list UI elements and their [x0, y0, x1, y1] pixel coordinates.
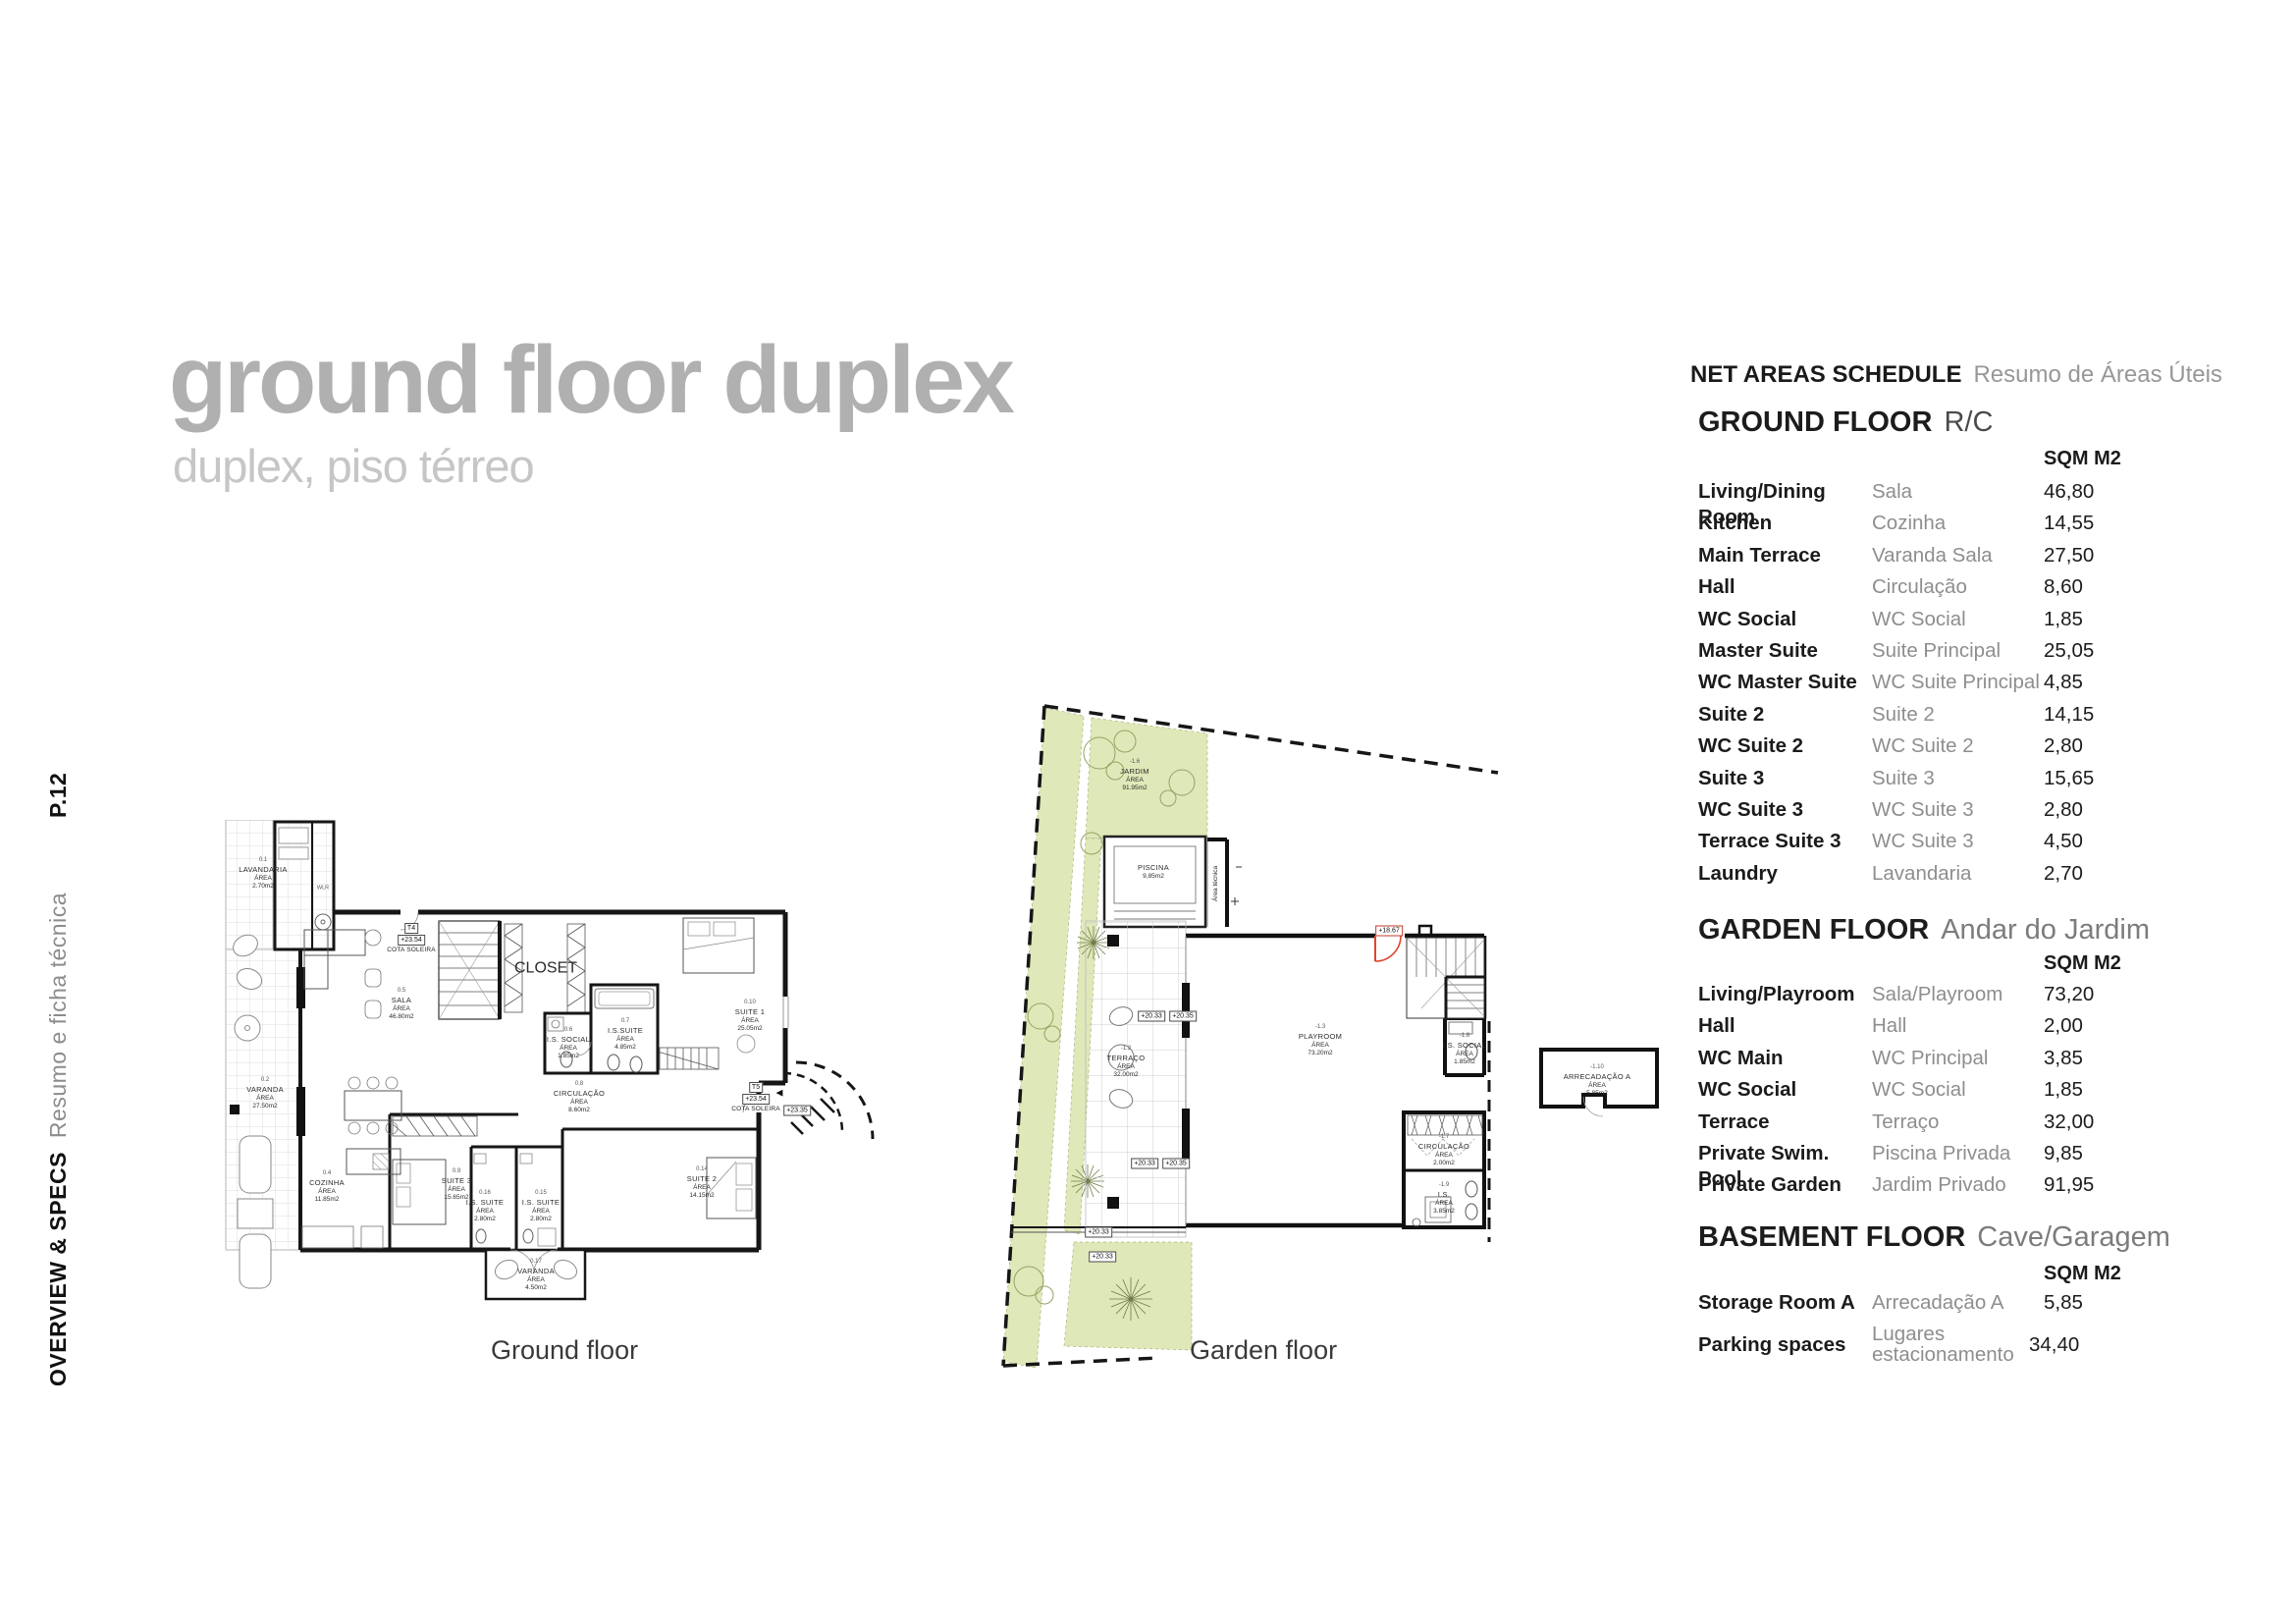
garden-floor-rows: Living/PlayroomSala/Playroom73,20 HallHa…	[1698, 982, 2152, 1205]
area-row: Suite 3Suite 315,65	[1698, 766, 2152, 797]
area-row: WC SocialWC Social1,85	[1698, 607, 2152, 638]
section-heading-ground-floor: GROUND FLOORR/C	[1698, 406, 1993, 439]
entrance-arcs	[783, 1062, 873, 1139]
area-row: Terrace Suite 3WC Suite 34,50	[1698, 829, 2152, 860]
marker-elev-g6: +20.33	[1089, 1251, 1116, 1264]
net-areas-schedule: NET AREAS SCHEDULEResumo de Áreas Úteis …	[1690, 361, 2152, 1402]
marker-t4: T4 +23.54 COTA SOLEIRA	[387, 922, 436, 953]
room-label-varanda: 0.2 VARANDA ÁREA 27.50m2	[246, 1077, 284, 1110]
unit-header-ground: SQM M2	[2044, 448, 2121, 470]
room-label-suite1: 0.10 SUITE 1 ÁREA 25.05m2	[735, 1000, 765, 1033]
room-label-garden-is: -1.9 I.S. ÁREA 3.85m2	[1433, 1182, 1455, 1216]
room-label-is16: 0.16 I.S. SUITE ÁREA 2.80m2	[466, 1190, 504, 1223]
sidebar-section: OVERVIEW & SPECSResumo e ficha técnica	[45, 893, 72, 1386]
room-label-wlr: WLR	[317, 885, 329, 892]
area-row: WC MainWC Principal3,85	[1698, 1046, 2152, 1077]
room-label-piscina: PISCINA 9,85m2	[1138, 863, 1169, 881]
room-label-is-suite: 0.7 I.S.SUITE ÁREA 4.85m2	[608, 1018, 643, 1052]
ground-floor-plan: 0.1 LAVANDARIA ÁREA 2.70m2 WLR 0.2 VARAN…	[224, 820, 877, 1321]
room-label-is-social: 0.6 I.S. SOCIAL ÁREA 1.85m2	[547, 1027, 590, 1060]
marker-elev-g1: +20.33	[1138, 1010, 1165, 1023]
room-label-arrecadacao: -1.10 ARRECADAÇÃO A ÁREA 5.85m2	[1564, 1064, 1631, 1098]
garden-floor-caption: Garden floor	[1190, 1335, 1337, 1366]
room-label-suite2: 0.14 SUITE 2 ÁREA 14.15m2	[687, 1166, 717, 1200]
room-label-cozinha: 0.4 COZINHA ÁREA 11.85m2	[309, 1170, 345, 1204]
marker-elev-g4: +20.35	[1162, 1158, 1190, 1170]
unit-header-basement: SQM M2	[2044, 1263, 2121, 1285]
area-row: Master SuiteSuite Principal25,05	[1698, 638, 2152, 670]
room-label-circulacao: 0.8 CIRCULAÇÃO ÁREA 8.60m2	[554, 1081, 605, 1114]
area-row: Living/PlayroomSala/Playroom73,20	[1698, 982, 2152, 1013]
entry-door-red	[1375, 936, 1401, 961]
room-label-is15: 0.15 I.S. SUITE ÁREA 2.80m2	[522, 1190, 560, 1223]
garden-staircase	[1407, 938, 1484, 1018]
area-row: Parking spacesLugares estacionamento34,4…	[1698, 1322, 2152, 1367]
area-row: Living/Dining RoomSala46,80	[1698, 479, 2152, 511]
room-label-playroom: -1.3 PLAYROOM ÁREA 73.20m2	[1299, 1024, 1342, 1057]
schedule-title: NET AREAS SCHEDULEResumo de Áreas Úteis	[1690, 361, 2222, 389]
direction-triangle-icon: ◀	[776, 1088, 783, 1099]
unit-header-garden: SQM M2	[2044, 952, 2121, 975]
section-heading-basement-floor: BASEMENT FLOORCave/Garagem	[1698, 1221, 2170, 1254]
area-row: KitchenCozinha14,55	[1698, 511, 2152, 542]
area-row: HallHall2,00	[1698, 1013, 2152, 1045]
garden-floor-plan: -1.6 JARDIM ÁREA 91.95m2 PISCINA 9,85m2 …	[999, 692, 1659, 1380]
page-number: P.12	[45, 773, 72, 818]
ground-floor-plan-drawing	[224, 820, 877, 1321]
area-row: Storage Room AArrecadação A5,85	[1698, 1290, 2152, 1322]
ground-floor-rows: Living/Dining RoomSala46,80 KitchenCozin…	[1698, 479, 2152, 893]
area-row: WC Suite 2WC Suite 22,80	[1698, 733, 2152, 765]
area-row: Suite 2Suite 214,15	[1698, 702, 2152, 733]
marker-elev-g5: +20.33	[1085, 1226, 1112, 1239]
brochure-page: P.12 OVERVIEW & SPECSResumo e ficha técn…	[0, 0, 2296, 1624]
page-title: ground floor duplex	[169, 332, 1012, 429]
area-row: WC SocialWC Social1,85	[1698, 1077, 2152, 1109]
marker-elev-2335: +23.35	[783, 1105, 811, 1117]
swimming-pool	[1104, 837, 1205, 927]
room-label-garden-circulacao: -1.7 CIRCULAÇÃO ÁREA 2.00m2	[1418, 1134, 1469, 1167]
room-label-lavandaria: 0.1 LAVANDARIA ÁREA 2.70m2	[239, 857, 287, 891]
area-row: TerraceTerraço32,00	[1698, 1110, 2152, 1141]
room-label-closet: CLOSET	[514, 959, 577, 980]
area-row: Private Swim. PoolPiscina Privada9,85	[1698, 1141, 2152, 1172]
room-label-varanda17: 0.17 VARANDA ÁREA 4.50m2	[517, 1259, 555, 1292]
basement-floor-rows: Storage Room AArrecadação A5,85 Parking …	[1698, 1290, 2152, 1367]
area-row: WC Suite 3WC Suite 32,80	[1698, 797, 2152, 829]
area-row: Private GardenJardim Privado91,95	[1698, 1172, 2152, 1204]
sidebar-section-en: OVERVIEW & SPECS	[45, 1152, 71, 1386]
marker-t5: T5 +23.54 COTA SOLEIRA	[731, 1081, 780, 1112]
room-label-area-tecnica: Área técnica	[1212, 866, 1220, 901]
marker-elev-g3: +20.33	[1131, 1158, 1158, 1170]
area-row: WC Master SuiteWC Suite Principal4,85	[1698, 670, 2152, 701]
area-row: LaundryLavandaria2,70	[1698, 861, 2152, 893]
room-label-jardim: -1.6 JARDIM ÁREA 91.95m2	[1120, 759, 1149, 792]
marker-elev-red: +18.67	[1375, 925, 1403, 938]
room-label-garden-is-social: -1.8 I.S. SOCIAL ÁREA 1.85m2	[1443, 1033, 1486, 1066]
ground-floor-caption: Ground floor	[491, 1335, 638, 1366]
section-heading-garden-floor: GARDEN FLOORAndar do Jardim	[1698, 914, 2150, 947]
sidebar-section-pt: Resumo e ficha técnica	[45, 893, 71, 1138]
room-label-sala: 0.5 SALA ÁREA 46.80m2	[389, 988, 413, 1021]
marker-elev-g2: +20.35	[1169, 1010, 1197, 1023]
page-subtitle: duplex, piso térreo	[173, 443, 1012, 489]
title-block: ground floor duplex duplex, piso térreo	[169, 332, 1012, 489]
area-row: Main TerraceVaranda Sala27,50	[1698, 543, 2152, 574]
room-label-terraco: -1.2 TERRAÇO ÁREA 32.00m2	[1107, 1046, 1146, 1079]
area-row: HallCirculação8,60	[1698, 574, 2152, 606]
staircase	[439, 921, 500, 1019]
